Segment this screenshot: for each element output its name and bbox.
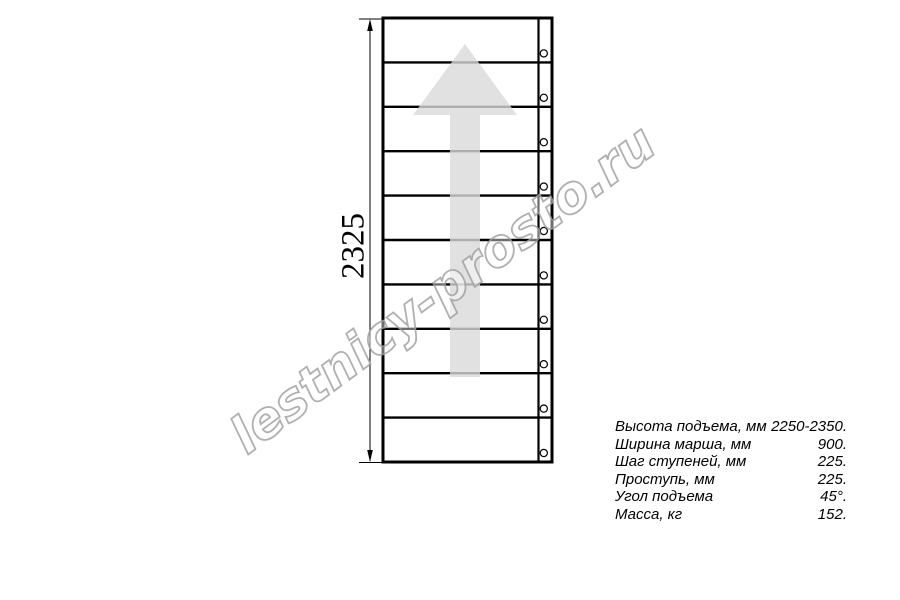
spec-label: Масса, кг — [615, 506, 682, 524]
fastener-hole — [540, 405, 547, 412]
dimension-arrowhead-top — [367, 19, 373, 31]
spec-row: Шаг ступеней, мм 225. — [615, 453, 847, 471]
spec-label: Угол подъема — [615, 488, 713, 506]
spec-value: 45°. — [820, 488, 847, 506]
spec-row: Проступь, мм 225. — [615, 471, 847, 489]
spec-value: 900. — [818, 436, 847, 454]
spec-value: 225. — [818, 453, 847, 471]
spec-value: 225. — [818, 471, 847, 489]
spec-row: Угол подъема 45°. — [615, 488, 847, 506]
specs-table: Высота подъема, мм 2250-2350. Ширина мар… — [615, 418, 847, 524]
spec-label: Высота подъема, мм — [615, 418, 767, 436]
spec-row: Высота подъема, мм 2250-2350. — [615, 418, 847, 436]
dimension-arrowhead-bottom — [367, 450, 373, 462]
spec-label: Шаг ступеней, мм — [615, 453, 746, 471]
spec-value: 152. — [818, 506, 847, 524]
spec-label: Ширина марша, мм — [615, 436, 751, 454]
spec-row: Масса, кг 152. — [615, 506, 847, 524]
spec-label: Проступь, мм — [615, 471, 715, 489]
fastener-hole — [540, 361, 547, 368]
fastener-hole — [540, 272, 547, 279]
watermark-text: lestnicy-prosto.ru — [220, 114, 667, 466]
fastener-hole — [540, 139, 547, 146]
fastener-hole — [540, 50, 547, 57]
technical-drawing-page: 2325 lestnicy-prosto.ru Высота подъема, … — [0, 0, 900, 600]
spec-row: Ширина марша, мм 900. — [615, 436, 847, 454]
fastener-hole — [540, 449, 547, 456]
dimension-label: 2325 — [336, 213, 372, 279]
fastener-hole — [540, 94, 547, 101]
fastener-hole — [540, 316, 547, 323]
spec-value: 2250-2350. — [771, 418, 847, 436]
